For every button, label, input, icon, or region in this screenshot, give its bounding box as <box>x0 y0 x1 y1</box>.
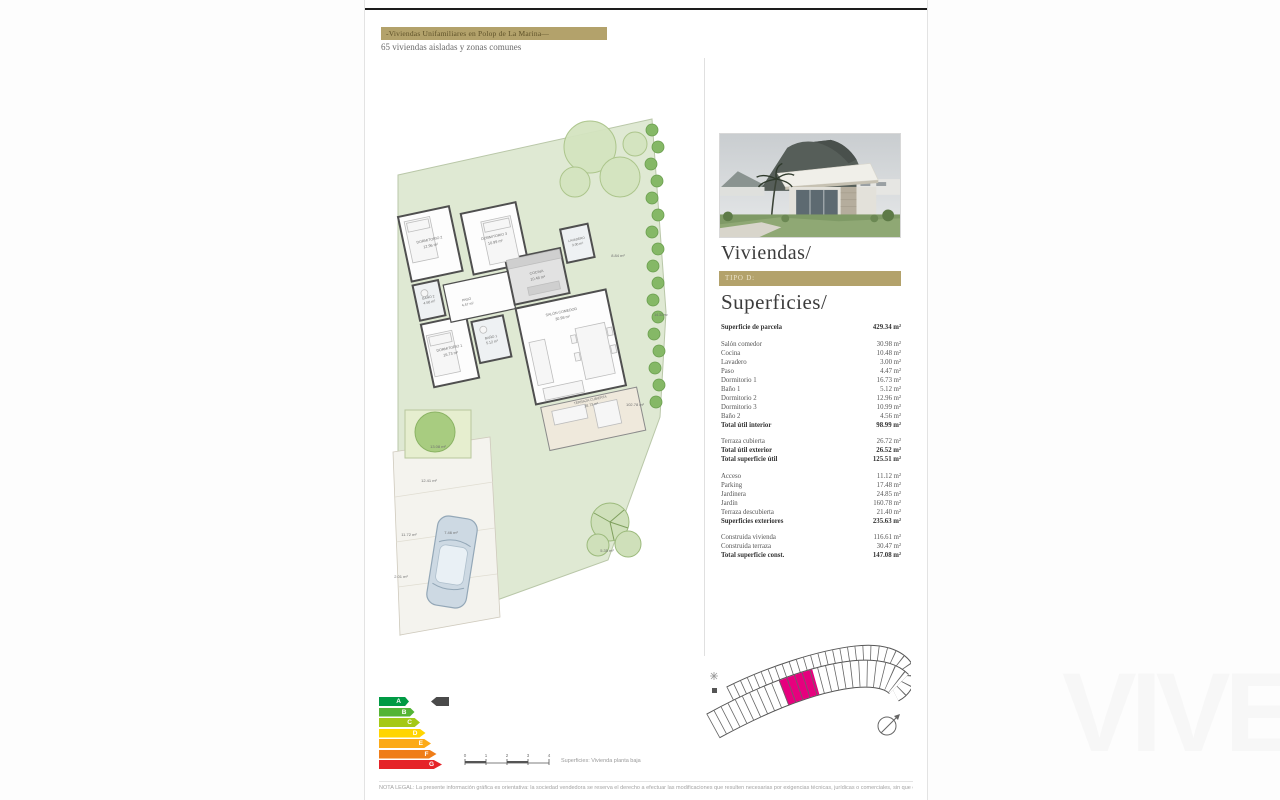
legal-disclaimer: NOTA LEGAL: La presente información gráf… <box>379 785 913 791</box>
superficie-label: Lavadero <box>721 358 747 367</box>
superficie-value: 26.72 m² <box>877 437 901 446</box>
superficies-group: Salón comedor30.98 m²Cocina10.48 m²Lavad… <box>721 340 901 430</box>
energy-bar-b: B <box>379 708 415 717</box>
superficie-value: 10.48 m² <box>877 349 901 358</box>
superficie-label: Terraza descubierta <box>721 508 774 517</box>
page-top-rule <box>365 8 927 10</box>
superficie-value: 26.52 m² <box>876 446 901 455</box>
project-title-banner: -Viviendas Unifamiliares en Polop de La … <box>381 27 607 40</box>
superficie-label: Construida terraza <box>721 542 771 551</box>
superficie-label: Jardinera <box>721 490 746 499</box>
energy-row-c: C <box>379 718 489 727</box>
superficie-row: Lavadero3.00 m² <box>721 358 901 367</box>
superficie-value: 160.78 m² <box>873 499 901 508</box>
brochure-page: -Viviendas Unifamiliares en Polop de La … <box>364 0 928 800</box>
superficie-row: Jardín160.78 m² <box>721 499 901 508</box>
svg-text:102.78 m²: 102.78 m² <box>626 402 645 407</box>
superficie-value: 24.85 m² <box>877 490 901 499</box>
superficie-value: 125.51 m² <box>873 455 901 464</box>
superficie-value: 429.34 m² <box>873 323 901 332</box>
superficie-label: Jardín <box>721 499 738 508</box>
superficie-row: Baño 24.56 m² <box>721 412 901 421</box>
superficie-label: Cocina <box>721 349 740 358</box>
energy-letter: B <box>402 708 407 717</box>
palm-tree <box>587 503 641 557</box>
superficie-value: 5.12 m² <box>880 385 901 394</box>
superficie-row: Cocina10.48 m² <box>721 349 901 358</box>
superficie-label: Construida vivienda <box>721 533 776 542</box>
superficie-label: Parking <box>721 481 742 490</box>
villa-render-photo <box>719 133 901 238</box>
superficie-row: Total superficie const.147.08 m² <box>721 551 901 560</box>
floor-plan: DORMITORIO 2 12.96 m² DORMITORIO 3 10.99… <box>385 92 687 668</box>
superficie-label: Baño 2 <box>721 412 740 421</box>
superficie-label: Superficie de parcela <box>721 323 782 332</box>
energy-letter: D <box>413 729 418 738</box>
superficie-label: Total útil interior <box>721 421 771 430</box>
superficie-label: Salón comedor <box>721 340 762 349</box>
svg-text:4: 4 <box>548 753 551 758</box>
svg-text:2.01 m²: 2.01 m² <box>394 574 408 579</box>
superficie-label: Terraza cubierta <box>721 437 765 446</box>
energy-bar-c: C <box>379 718 420 727</box>
energy-letter: E <box>419 739 423 748</box>
superficie-row: Construida terraza30.47 m² <box>721 542 901 551</box>
superficie-row: Total útil interior98.99 m² <box>721 421 901 430</box>
superficie-row: Dormitorio 212.96 m² <box>721 394 901 403</box>
superficie-value: 12.96 m² <box>877 394 901 403</box>
svg-text:14.33 m²: 14.33 m² <box>654 313 668 317</box>
superficie-value: 235.63 m² <box>873 517 901 526</box>
energy-letter: C <box>407 718 412 727</box>
superficie-label: Superficies exteriores <box>721 517 783 526</box>
energy-bar-g: G <box>379 760 442 769</box>
superficie-row: Salón comedor30.98 m² <box>721 340 901 349</box>
svg-text:8.84 m²: 8.84 m² <box>611 253 625 258</box>
energy-letter: G <box>429 760 434 769</box>
svg-text:1: 1 <box>485 753 488 758</box>
background-watermark: VIVE <box>1062 648 1280 777</box>
superficie-row: Total útil exterior26.52 m² <box>721 446 901 455</box>
superficie-label: Dormitorio 2 <box>721 394 757 403</box>
superficie-row: Baño 15.12 m² <box>721 385 901 394</box>
superficie-label: Acceso <box>721 472 741 481</box>
siteplan-icons <box>710 672 718 693</box>
superficie-value: 10.99 m² <box>877 403 901 412</box>
superficie-row: Terraza cubierta26.72 m² <box>721 437 901 446</box>
superficie-row: Parking17.48 m² <box>721 481 901 490</box>
superficie-value: 11.12 m² <box>877 472 901 481</box>
energy-bar-a: A <box>379 697 409 706</box>
svg-text:0: 0 <box>464 753 467 758</box>
energy-bar-f: F <box>379 750 437 759</box>
energy-row-b: B <box>379 708 489 717</box>
superficie-label: Total superficie útil <box>721 455 777 464</box>
superficie-row: Terraza descubierta21.40 m² <box>721 508 901 517</box>
svg-text:11.72 m²: 11.72 m² <box>401 532 417 537</box>
superficie-row: Dormitorio 116.73 m² <box>721 376 901 385</box>
energy-bar-d: D <box>379 729 426 738</box>
svg-text:12.41 m²: 12.41 m² <box>421 478 437 483</box>
svg-text:2: 2 <box>506 753 509 758</box>
energy-row-e: E <box>379 739 489 748</box>
footer-rule <box>379 781 913 782</box>
superficie-row: Construida vivienda116.61 m² <box>721 533 901 542</box>
svg-text:3: 3 <box>527 753 530 758</box>
superficie-label: Dormitorio 3 <box>721 403 757 412</box>
superficie-value: 3.00 m² <box>880 358 901 367</box>
scale-bar: 0 1 2 3 4 <box>463 752 555 770</box>
site-plan <box>701 638 911 746</box>
superficie-row: Acceso11.12 m² <box>721 472 901 481</box>
superficie-label: Paso <box>721 367 734 376</box>
superficie-row: Dormitorio 310.99 m² <box>721 403 901 412</box>
superficie-row: Superficies exteriores235.63 m² <box>721 517 901 526</box>
superficie-value: 98.99 m² <box>876 421 901 430</box>
tipo-label-bar: TIPO D: <box>719 271 901 286</box>
superficie-value: 147.08 m² <box>873 551 901 560</box>
superficie-value: 4.47 m² <box>880 367 901 376</box>
energy-bar-e: E <box>379 739 431 748</box>
floor-plan-drawing: DORMITORIO 2 12.96 m² DORMITORIO 3 10.99… <box>385 92 687 668</box>
column-divider <box>704 58 705 656</box>
superficie-label: Total útil exterior <box>721 446 772 455</box>
superficie-row: Superficie de parcela429.34 m² <box>721 323 901 332</box>
superficie-label: Baño 1 <box>721 385 740 394</box>
superficie-value: 30.98 m² <box>877 340 901 349</box>
superficie-value: 21.40 m² <box>877 508 901 517</box>
energy-letter: A <box>396 697 401 706</box>
superficies-group: Acceso11.12 m²Parking17.48 m²Jardinera24… <box>721 472 901 526</box>
superficie-value: 116.61 m² <box>874 533 901 542</box>
superficie-label: Dormitorio 1 <box>721 376 757 385</box>
scale-caption: Superficies: Vivienda planta baja <box>561 758 641 764</box>
superficies-table: Superficie de parcela429.34 m²Salón come… <box>721 323 901 568</box>
superficie-row: Paso4.47 m² <box>721 367 901 376</box>
project-subtitle: 65 viviendas aisladas y zonas comunes <box>381 42 521 52</box>
section-title-superficies: Superficies/ <box>721 290 827 315</box>
superficie-value: 17.48 m² <box>877 481 901 490</box>
superficie-row: Total superficie útil125.51 m² <box>721 455 901 464</box>
svg-text:7.46 m²: 7.46 m² <box>444 530 458 535</box>
superficie-value: 16.73 m² <box>877 376 901 385</box>
svg-text:5.35 m²: 5.35 m² <box>600 548 614 553</box>
superficie-row: Jardinera24.85 m² <box>721 490 901 499</box>
superficie-label: Total superficie const. <box>721 551 784 560</box>
superficies-group: Construida vivienda116.61 m²Construida t… <box>721 533 901 560</box>
superficie-value: 4.56 m² <box>880 412 901 421</box>
svg-text:13.08 m²: 13.08 m² <box>430 444 446 449</box>
energy-row-d: D <box>379 729 489 738</box>
superficies-group: Superficie de parcela429.34 m² <box>721 323 901 332</box>
jardinera <box>405 410 471 458</box>
energy-letter: F <box>425 750 429 759</box>
section-title-viviendas: Viviendas/ <box>721 242 811 265</box>
superficies-group: Terraza cubierta26.72 m²Total útil exter… <box>721 437 901 464</box>
compass-icon <box>878 714 900 735</box>
superficie-value: 30.47 m² <box>877 542 901 551</box>
